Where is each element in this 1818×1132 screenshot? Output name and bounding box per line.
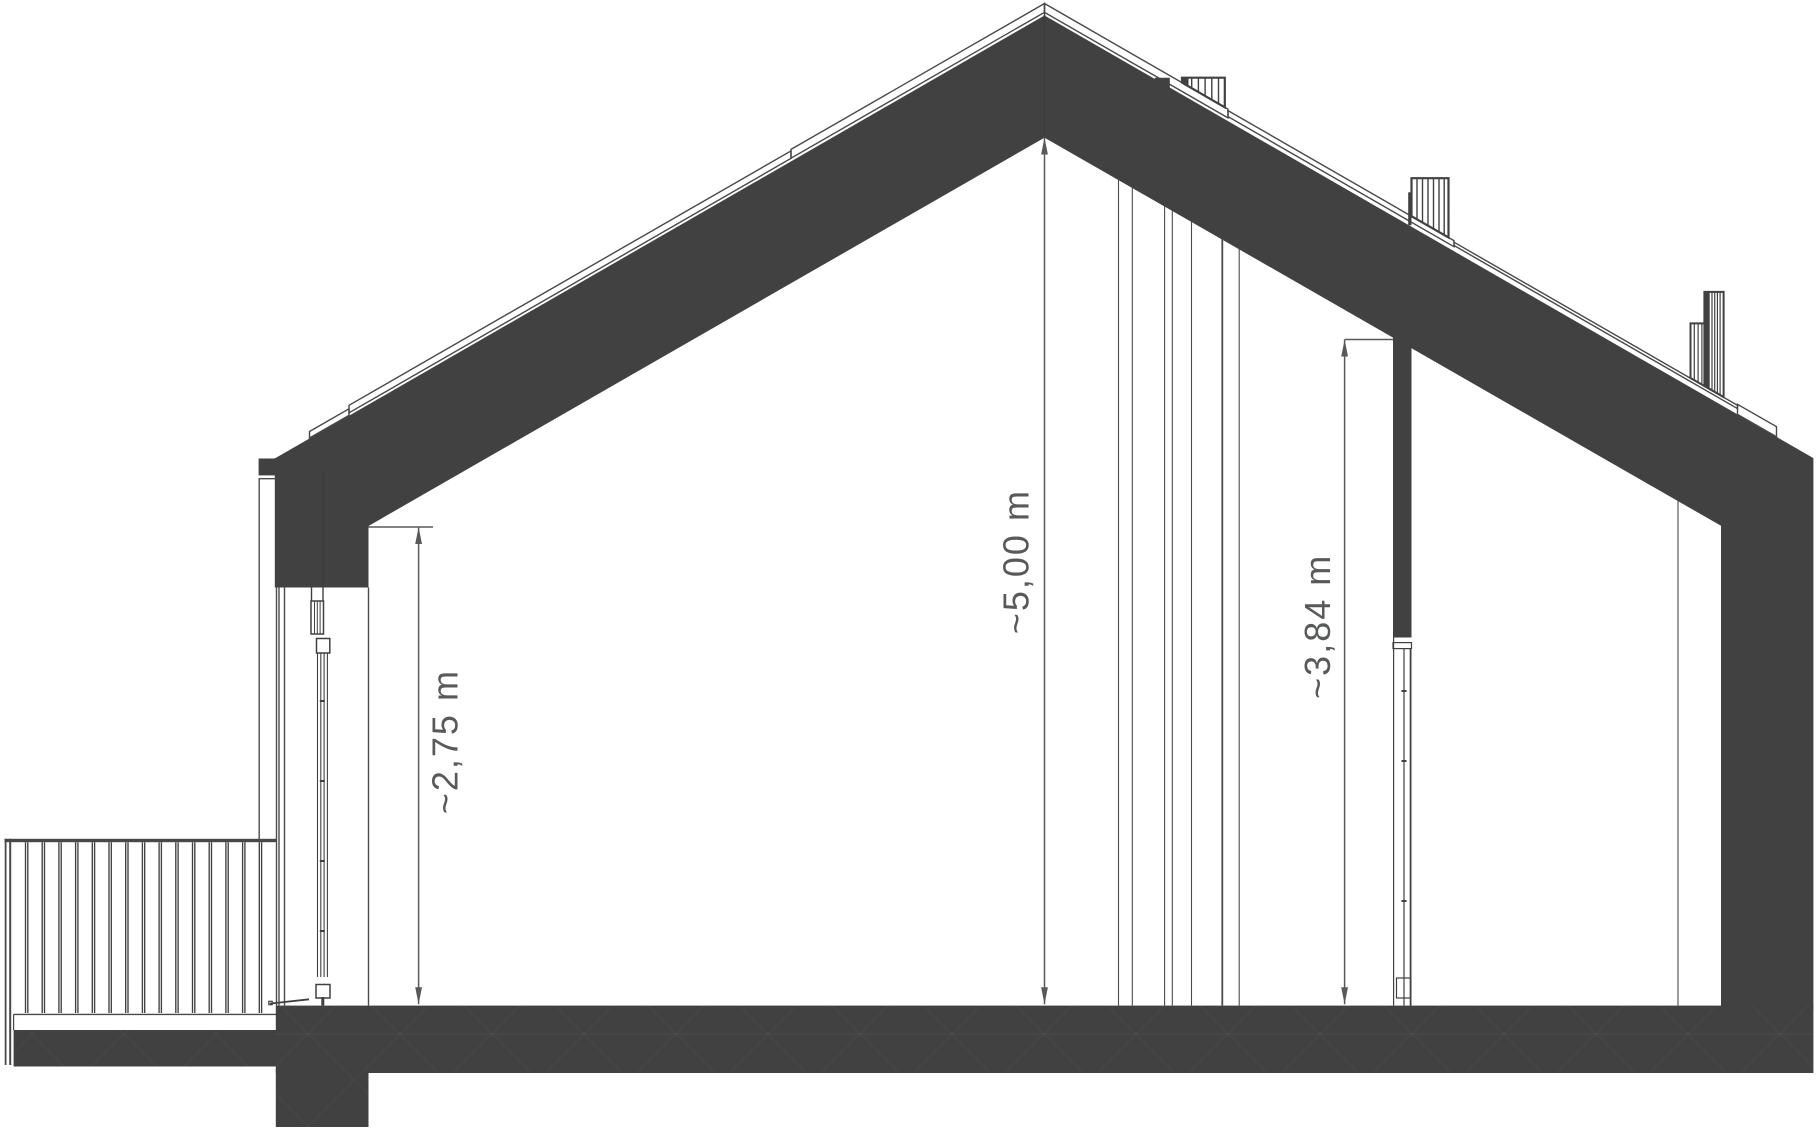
svg-text:~5,00 m: ~5,00 m [996, 489, 1037, 634]
svg-text:~3,84 m: ~3,84 m [1297, 554, 1338, 699]
svg-text:~2,75 m: ~2,75 m [425, 669, 466, 814]
